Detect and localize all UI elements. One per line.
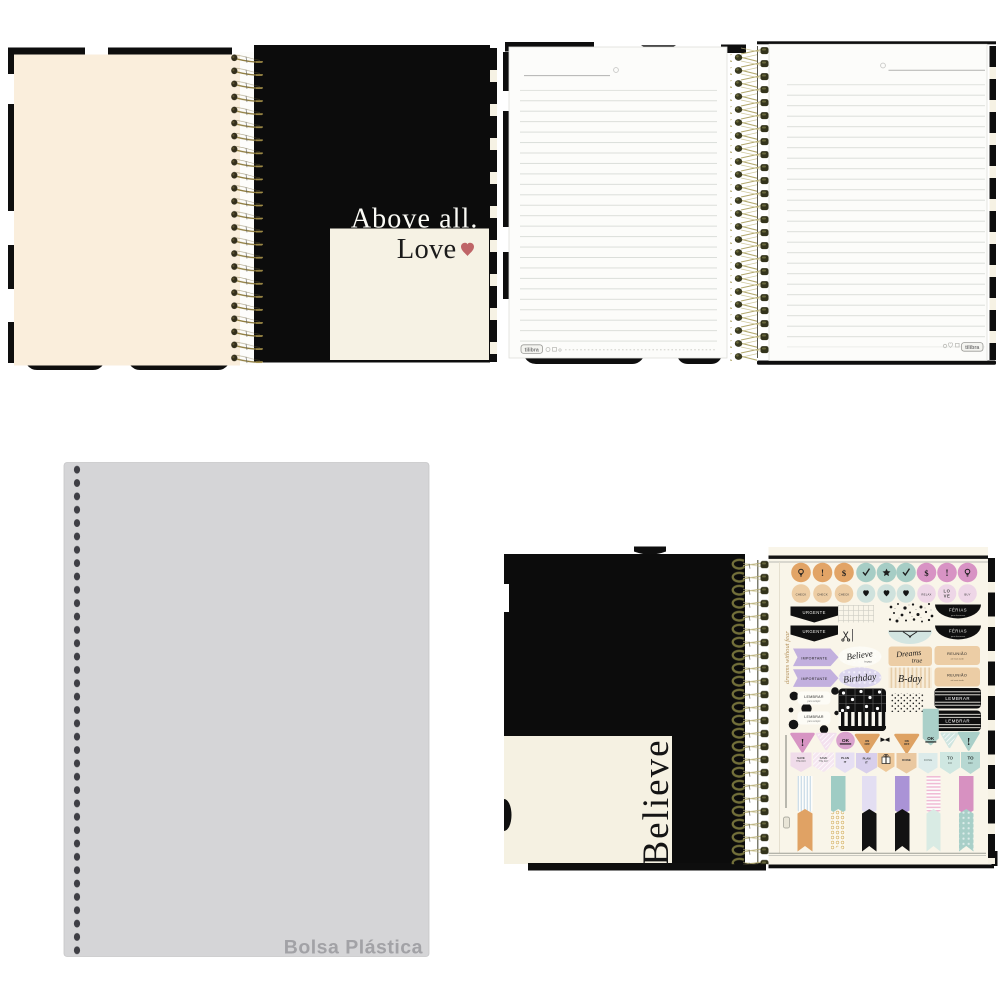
svg-text:FÉRIAS: FÉRIAS: [949, 629, 967, 634]
svg-text:THE DAY: THE DAY: [819, 760, 829, 763]
svg-text:IT: IT: [865, 760, 868, 764]
svg-text:LEMBRAR: LEMBRAR: [945, 719, 970, 724]
svg-text:Believe: Believe: [636, 738, 677, 865]
svg-text:para sempre: para sempre: [807, 700, 822, 703]
svg-text:IT: IT: [844, 760, 847, 764]
svg-text:TO: TO: [947, 756, 954, 761]
svg-text:IMPORTANTE: IMPORTANTE: [801, 656, 828, 660]
svg-text:THE DAY: THE DAY: [796, 760, 806, 763]
svg-text:OK: OK: [927, 736, 935, 741]
svg-text:BUY: BUY: [964, 592, 970, 596]
svg-text:ON: ON: [905, 739, 909, 743]
svg-text:VE: VE: [944, 594, 951, 599]
svg-text:CHECK: CHECK: [839, 592, 850, 596]
svg-text:B-day: B-day: [898, 674, 922, 685]
svg-text:URGENTE: URGENTE: [803, 629, 826, 634]
svg-text:para descansar: para descansar: [951, 635, 966, 638]
svg-text:SAVE: SAVE: [820, 756, 828, 760]
svg-text:RELAX: RELAX: [921, 592, 931, 596]
svg-text:IMPORTANTE: IMPORTANTE: [801, 677, 828, 681]
svg-text:TO: TO: [967, 756, 974, 761]
svg-text:URGENTE: URGENTE: [803, 610, 826, 615]
svg-text:ON: ON: [865, 739, 869, 743]
svg-text:SAVE: SAVE: [797, 756, 805, 760]
svg-text:LEMBRAR: LEMBRAR: [945, 696, 970, 701]
svg-text:para descansar: para descansar: [951, 614, 966, 617]
svg-text:REUNIÃO: REUNIÃO: [947, 651, 967, 656]
svg-text:para sempre: para sempre: [807, 720, 822, 723]
svg-text:dreams without fear: dreams without fear: [784, 631, 791, 684]
svg-text:tilibra: tilibra: [525, 347, 539, 353]
svg-text:LEMBRAR: LEMBRAR: [804, 695, 824, 699]
svg-text:OFF: OFF: [904, 742, 910, 746]
svg-text:LEMBRAR: LEMBRAR: [804, 715, 824, 719]
svg-text:!: !: [801, 738, 804, 749]
svg-text:até mais tarde: até mais tarde: [951, 679, 965, 682]
svg-text:!: !: [946, 568, 949, 578]
svg-text:true: true: [912, 658, 923, 665]
svg-text:!: !: [821, 568, 824, 578]
svg-text:FÉRIAS: FÉRIAS: [949, 608, 967, 613]
svg-text:Bolsa Plástica: Bolsa Plástica: [284, 937, 423, 959]
svg-text:CHECK: CHECK: [796, 592, 807, 596]
svg-text:!: !: [967, 737, 970, 748]
svg-text:Love: Love: [397, 234, 457, 265]
svg-text:OK: OK: [842, 738, 850, 744]
svg-text:tilibra: tilibra: [965, 345, 979, 351]
svg-text:REUNIÃO: REUNIÃO: [947, 672, 967, 677]
svg-text:in you: in you: [865, 660, 872, 664]
svg-text:DONE: DONE: [902, 758, 911, 762]
svg-text:OFF: OFF: [865, 742, 871, 746]
svg-text:CHECK: CHECK: [817, 592, 828, 596]
svg-text:até mais tarde: até mais tarde: [951, 657, 965, 660]
svg-text:DONE: DONE: [924, 758, 932, 762]
